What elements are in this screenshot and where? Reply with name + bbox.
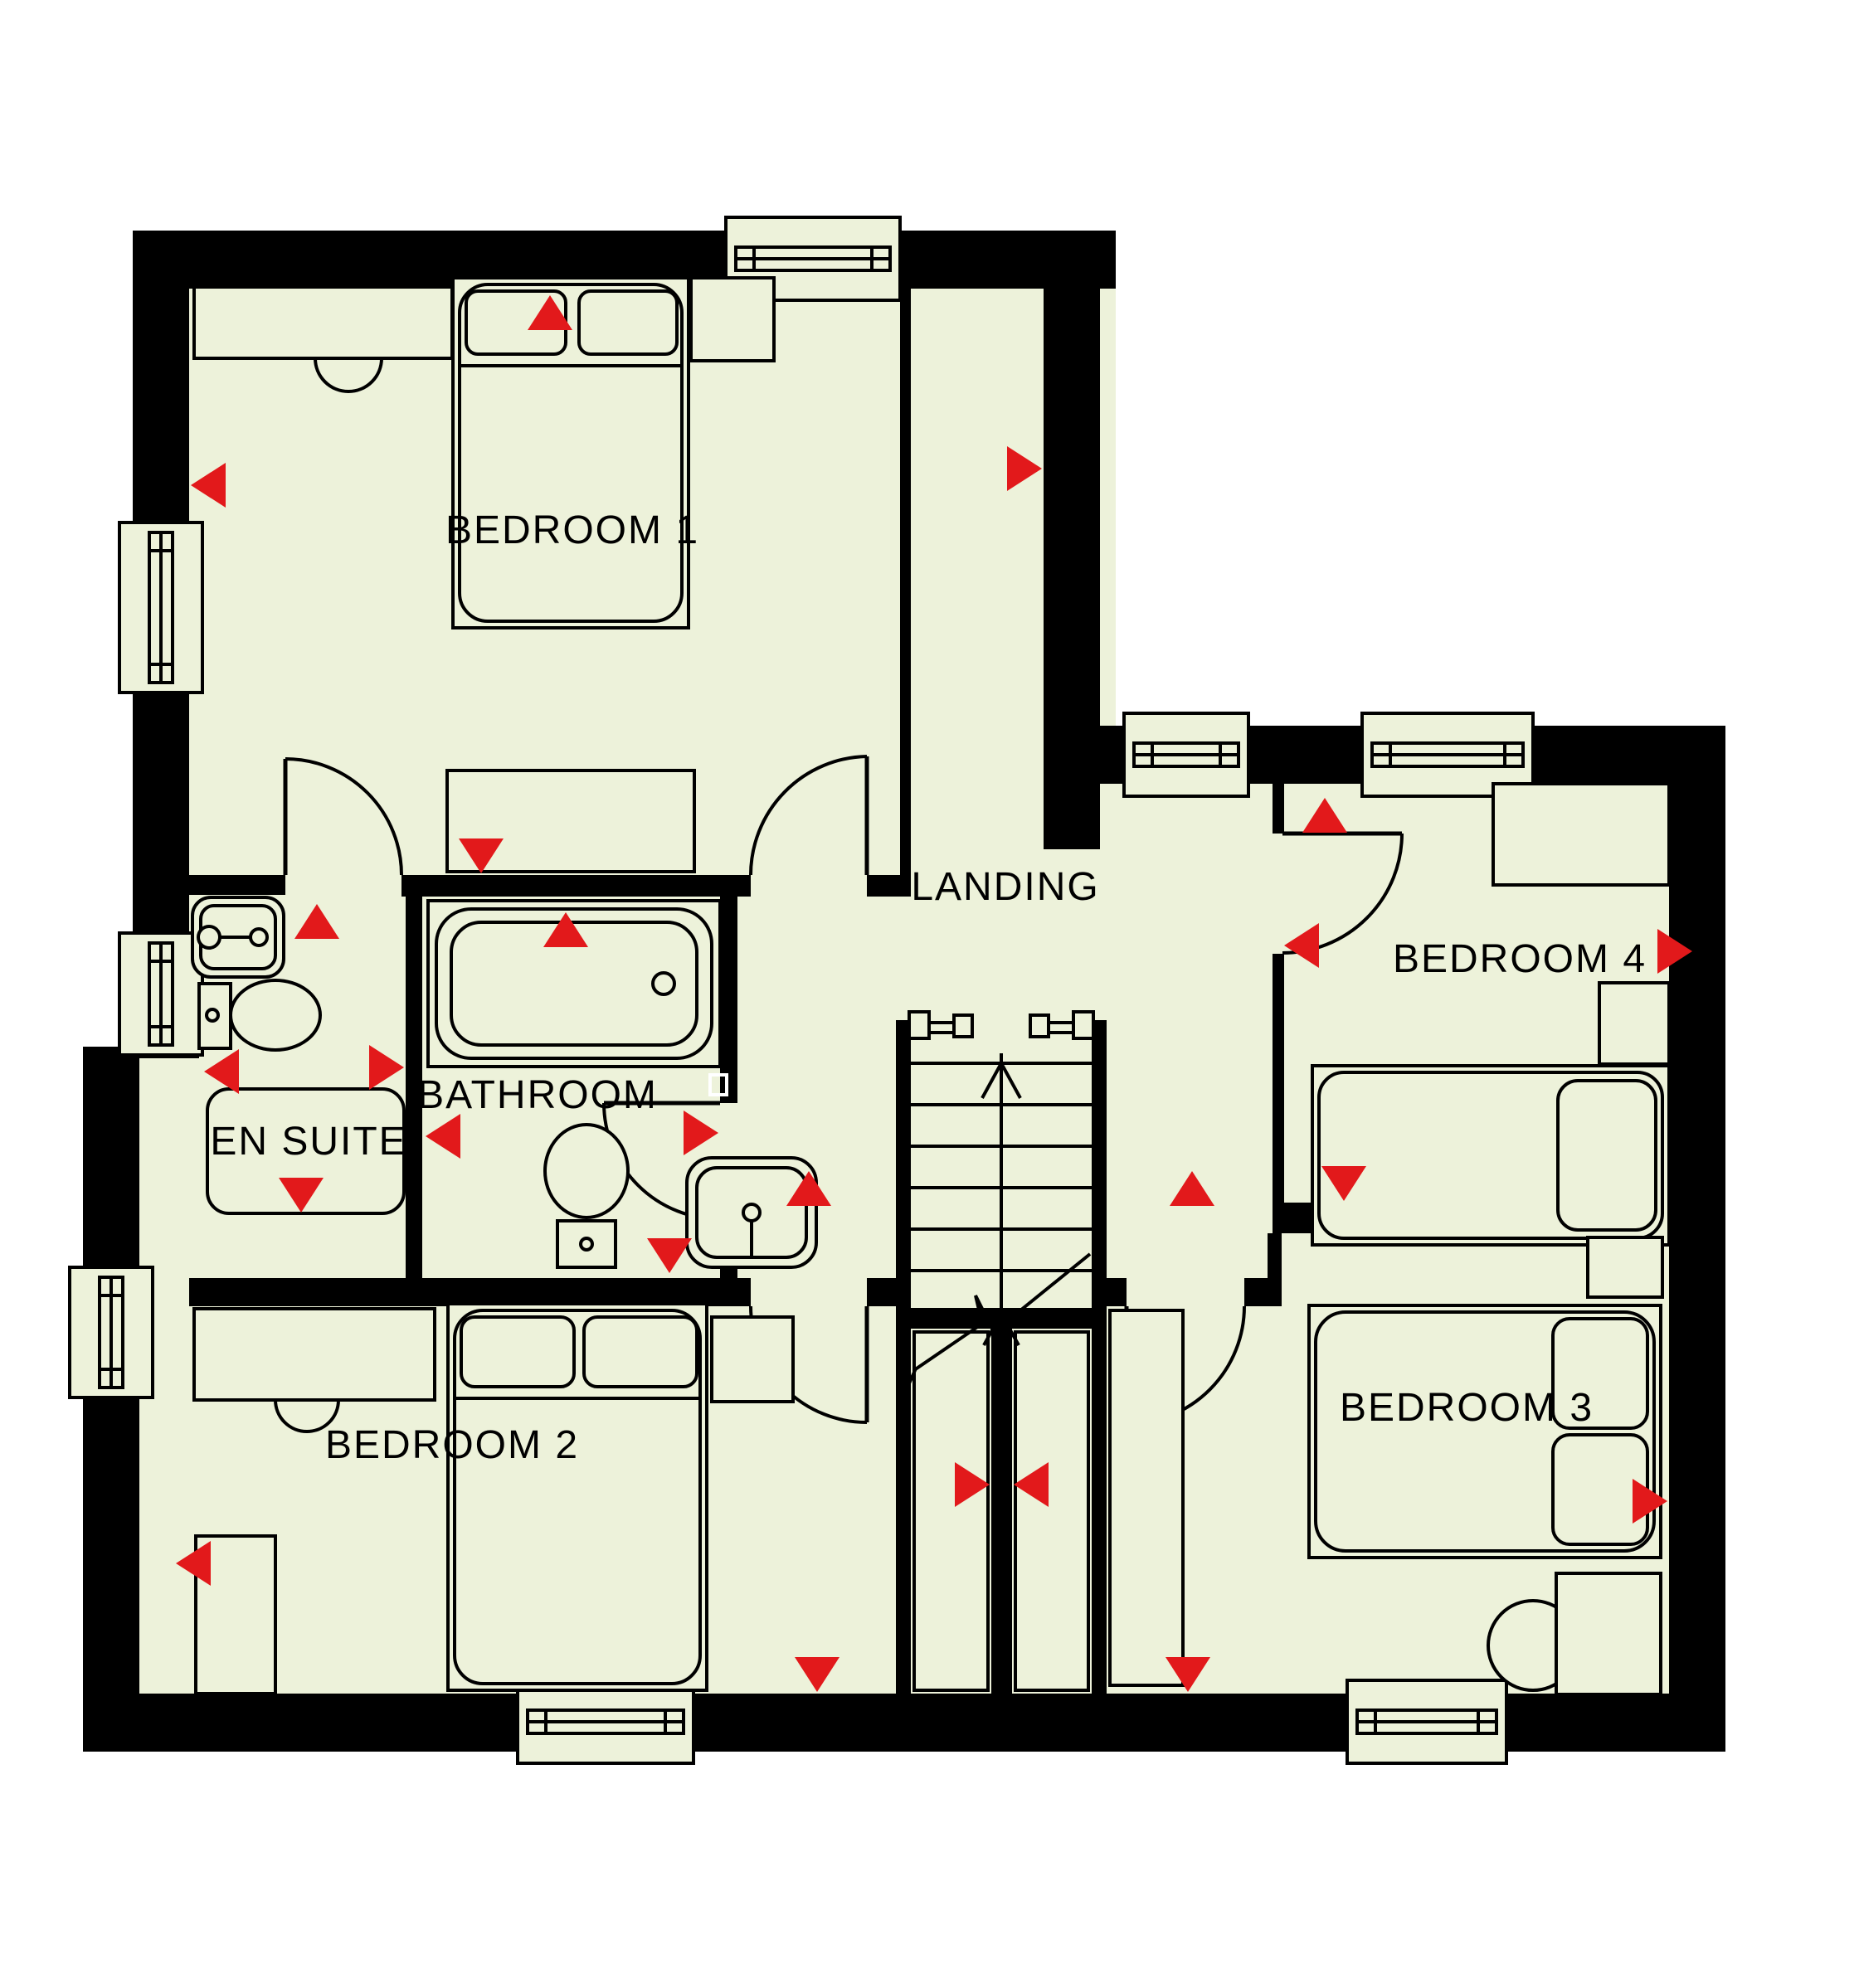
floor-plan-page: BEDROOM 1LANDINGBEDROOM 4BATHROOMEN SUIT… (0, 0, 1859, 1988)
window-bed2-left (70, 1267, 153, 1397)
wall-bath-south-e (867, 1278, 896, 1306)
stair-newel-2 (1030, 1015, 1049, 1037)
bed1-pillow-right (579, 291, 677, 354)
room-label-bedroom-3: BEDROOM 3 (1340, 1386, 1594, 1430)
bed3-wardrobe-west (1110, 1310, 1183, 1685)
window-landing-wing (1124, 713, 1248, 796)
wall-corridor-partition (900, 287, 911, 875)
room-label-en-suite: EN SUITE (210, 1120, 406, 1164)
bed4-pillow (1558, 1081, 1656, 1230)
ensuite-tap-knob1 (198, 926, 220, 948)
wall-cupboard-divider (991, 1329, 1012, 1694)
window-bed3-bottom (1347, 1680, 1506, 1763)
room-label-bedroom-4: BEDROOM 4 (1393, 937, 1647, 981)
cupboard-under-stairs-left (914, 1332, 988, 1690)
floor-plan-canvas: BEDROOM 1LANDINGBEDROOM 4BATHROOMEN SUIT… (0, 0, 1859, 1988)
wall-right (1669, 726, 1725, 1752)
wall-stairwell-right (1092, 1020, 1107, 1694)
room-label-bedroom-1: BEDROOM 1 (445, 508, 699, 552)
bed2-wardrobe (194, 1309, 435, 1400)
bed2-pillow-left (461, 1317, 574, 1387)
wall-corridor-east (1044, 231, 1100, 849)
ensuite-tap-knob2 (251, 929, 267, 945)
wall-bed1-south-e (867, 875, 911, 897)
bed3-cabinet-north (1588, 1237, 1662, 1297)
bed1-wardrobe (194, 287, 452, 358)
wall-landing-south-e (1244, 1278, 1282, 1306)
bed2-pillow-right (584, 1317, 697, 1387)
stair-newel-0 (909, 1012, 929, 1038)
wall-bath-south-w (189, 1278, 751, 1306)
wall-bath-east-upper (720, 895, 737, 1103)
wall-stairwell-left (896, 1020, 911, 1694)
stair-newel-3 (1073, 1012, 1093, 1038)
bath-drain (653, 973, 674, 994)
ensuite-wc-button (207, 1009, 218, 1021)
room-label-bedroom-2: BEDROOM 2 (325, 1423, 579, 1467)
window-bed1-left (119, 523, 202, 693)
room-label-landing: LANDING (911, 865, 1099, 909)
cupboard-under-stairs-right (1015, 1332, 1088, 1690)
bath-wc-bowl (545, 1125, 628, 1218)
bed1-nightstand (691, 278, 774, 361)
wall-bed4-west-lower (1273, 954, 1284, 1203)
wall-bed1-south-w (189, 875, 285, 895)
room-label-bathroom: BATHROOM (417, 1073, 658, 1117)
wall-bed4-west-upper (1273, 784, 1284, 834)
window-ensuite-left (119, 933, 202, 1055)
wall-bed3-west-link (1268, 1233, 1282, 1278)
stair-newel-1 (954, 1015, 972, 1037)
ensuite-wc-bowl (231, 980, 320, 1050)
wall-landing-south-w (1107, 1278, 1127, 1306)
bed3-dressing-table (1556, 1573, 1661, 1694)
bed4-nightstand (1599, 983, 1669, 1064)
bed2-nightstand (712, 1317, 793, 1402)
bath-wc-button (581, 1238, 592, 1250)
bath-tap-knob (743, 1204, 760, 1221)
wall-bed1-south-mid (401, 875, 751, 897)
window-bed2-bottom (518, 1680, 693, 1763)
bed4-wardrobe (1493, 784, 1669, 885)
